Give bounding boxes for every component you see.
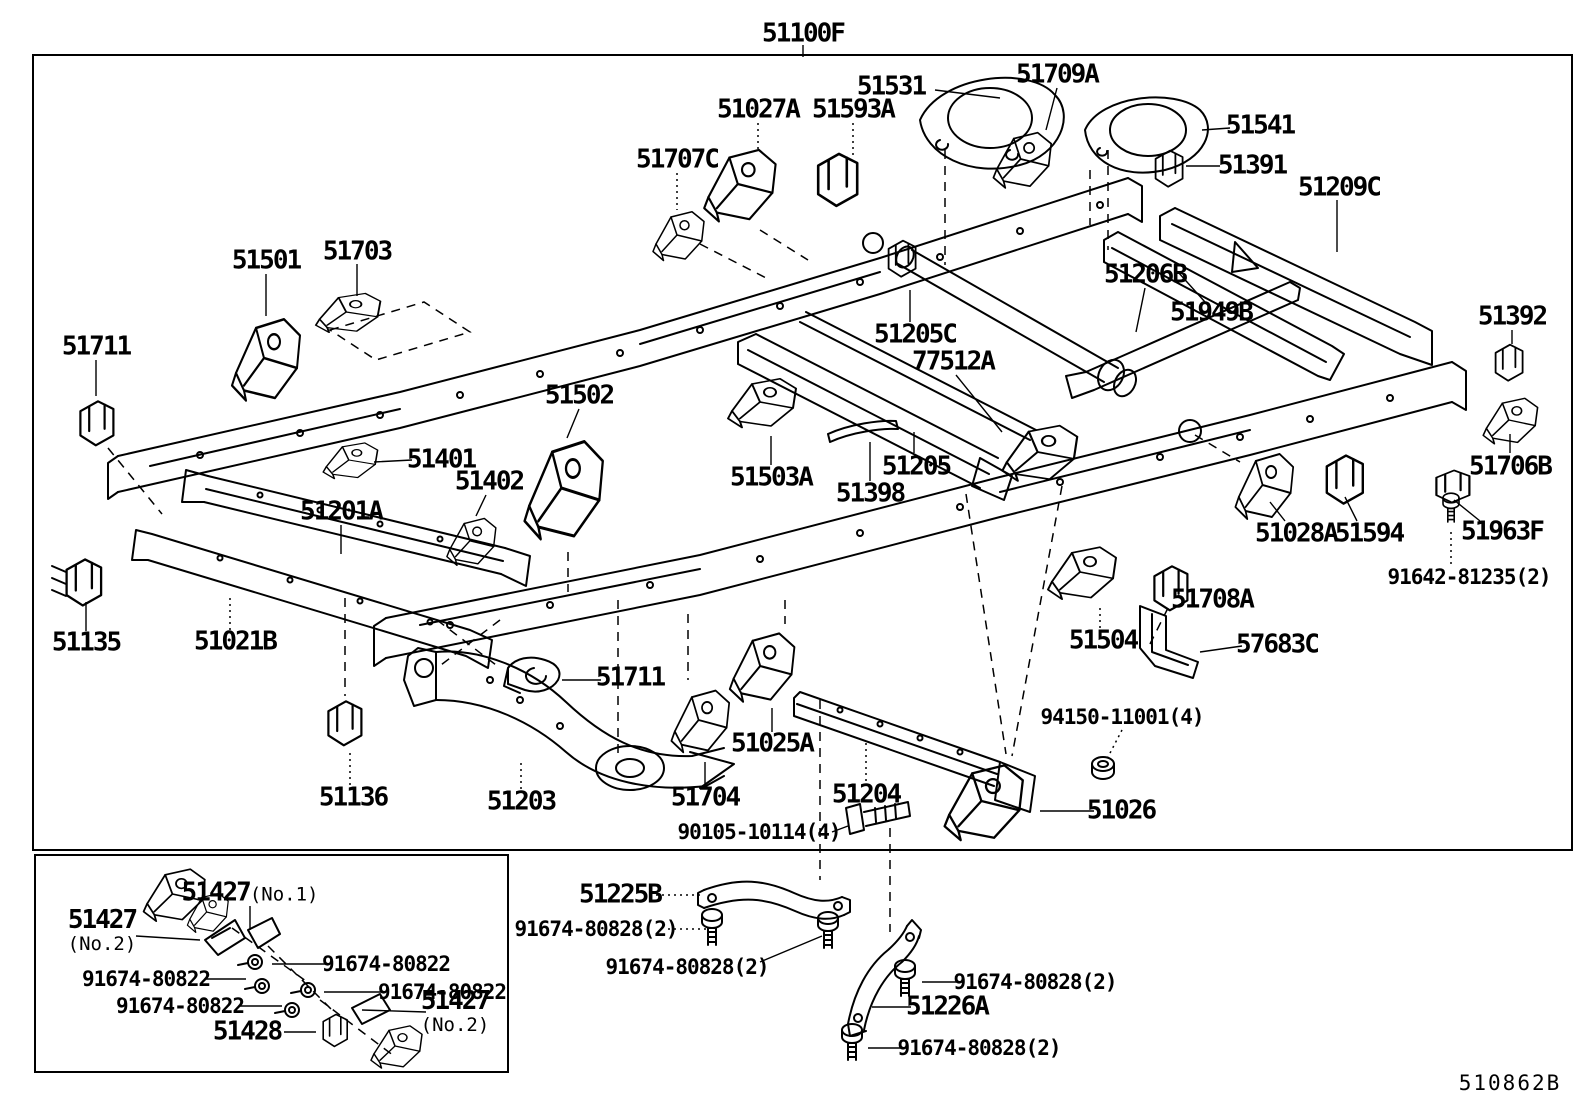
part-label-51209C: 51209C <box>1298 174 1380 201</box>
part-label-51704: 51704 <box>671 784 739 811</box>
part-label-51594: 51594 <box>1335 520 1403 547</box>
part-label-51205C: 51205C <box>874 321 956 348</box>
part-label-suffix: (No.2) <box>421 1016 490 1036</box>
part-label-51135: 51135 <box>52 629 120 656</box>
part-label-51428: 51428 <box>213 1018 281 1045</box>
part-label-91674-80822: 91674-80822 <box>322 953 450 975</box>
part-label-51021B: 51021B <box>194 628 276 655</box>
part-label-51391: 51391 <box>1218 152 1286 179</box>
part-label-51963F: 51963F <box>1461 518 1543 545</box>
part-label-94150-11001(4): 94150-11001(4) <box>1040 706 1203 728</box>
part-label-91674-80822: 91674-80822 <box>82 968 210 990</box>
part-label-51541: 51541 <box>1226 112 1294 139</box>
part-label-51206B: 51206B <box>1104 261 1186 288</box>
part-label-51225B: 51225B <box>579 881 661 908</box>
part-label-51703: 51703 <box>323 238 391 265</box>
part-label-51027A: 51027A <box>717 96 799 123</box>
part-label-51226A: 51226A <box>906 993 988 1020</box>
part-label-51711: 51711 <box>596 664 664 691</box>
part-label-51502: 51502 <box>545 382 613 409</box>
part-label-51392: 51392 <box>1478 303 1546 330</box>
part-label-91674-80828(2): 91674-80828(2) <box>605 956 768 978</box>
part-label-51100F: 51100F <box>762 20 844 47</box>
part-label-51025A: 51025A <box>731 730 813 757</box>
part-label-51501: 51501 <box>232 247 300 274</box>
part-label-51427: 51427(No.2) <box>421 988 490 1036</box>
parts-diagram-page: 51100F5153151709A51027A51593A51707C51541… <box>0 0 1592 1099</box>
part-label-51398: 51398 <box>836 480 904 507</box>
part-label-51949B: 51949B <box>1170 299 1252 326</box>
part-label-51427: 51427(No.2) <box>68 907 137 955</box>
part-label-91674-80828(2): 91674-80828(2) <box>897 1037 1060 1059</box>
part-label-51402: 51402 <box>455 468 523 495</box>
part-label-51707C: 51707C <box>636 146 718 173</box>
part-labels-layer: 51100F5153151709A51027A51593A51707C51541… <box>0 0 1592 1099</box>
part-label-51201A: 51201A <box>300 498 382 525</box>
part-label-51706B: 51706B <box>1469 453 1551 480</box>
part-label-91674-80828(2): 91674-80828(2) <box>514 918 677 940</box>
drawing-number: 510862B <box>1459 1072 1562 1094</box>
part-label-51711: 51711 <box>62 333 130 360</box>
part-label-91674-80828(2): 91674-80828(2) <box>953 971 1116 993</box>
part-label-51203: 51203 <box>487 788 555 815</box>
part-label-51026: 51026 <box>1087 797 1155 824</box>
part-label-51593A: 51593A <box>812 96 894 123</box>
part-label-51204: 51204 <box>832 781 900 808</box>
part-label-91674-80822: 91674-80822 <box>116 995 244 1017</box>
part-label-51708A: 51708A <box>1171 586 1253 613</box>
part-label-suffix: (No.2) <box>68 935 137 955</box>
part-label-suffix: (No.1) <box>250 883 319 905</box>
part-label-51205: 51205 <box>882 453 950 480</box>
part-label-51709A: 51709A <box>1016 61 1098 88</box>
part-label-77512A: 77512A <box>912 348 994 375</box>
part-label-51427: 51427(No.1) <box>182 879 319 906</box>
part-label-51136: 51136 <box>319 784 387 811</box>
part-label-90105-10114(4): 90105-10114(4) <box>677 821 840 843</box>
part-label-51028A: 51028A <box>1255 520 1337 547</box>
part-label-91642-81235(2): 91642-81235(2) <box>1387 566 1550 588</box>
part-label-57683C: 57683C <box>1236 631 1318 658</box>
part-label-51504: 51504 <box>1069 627 1137 654</box>
part-label-51503A: 51503A <box>730 464 812 491</box>
